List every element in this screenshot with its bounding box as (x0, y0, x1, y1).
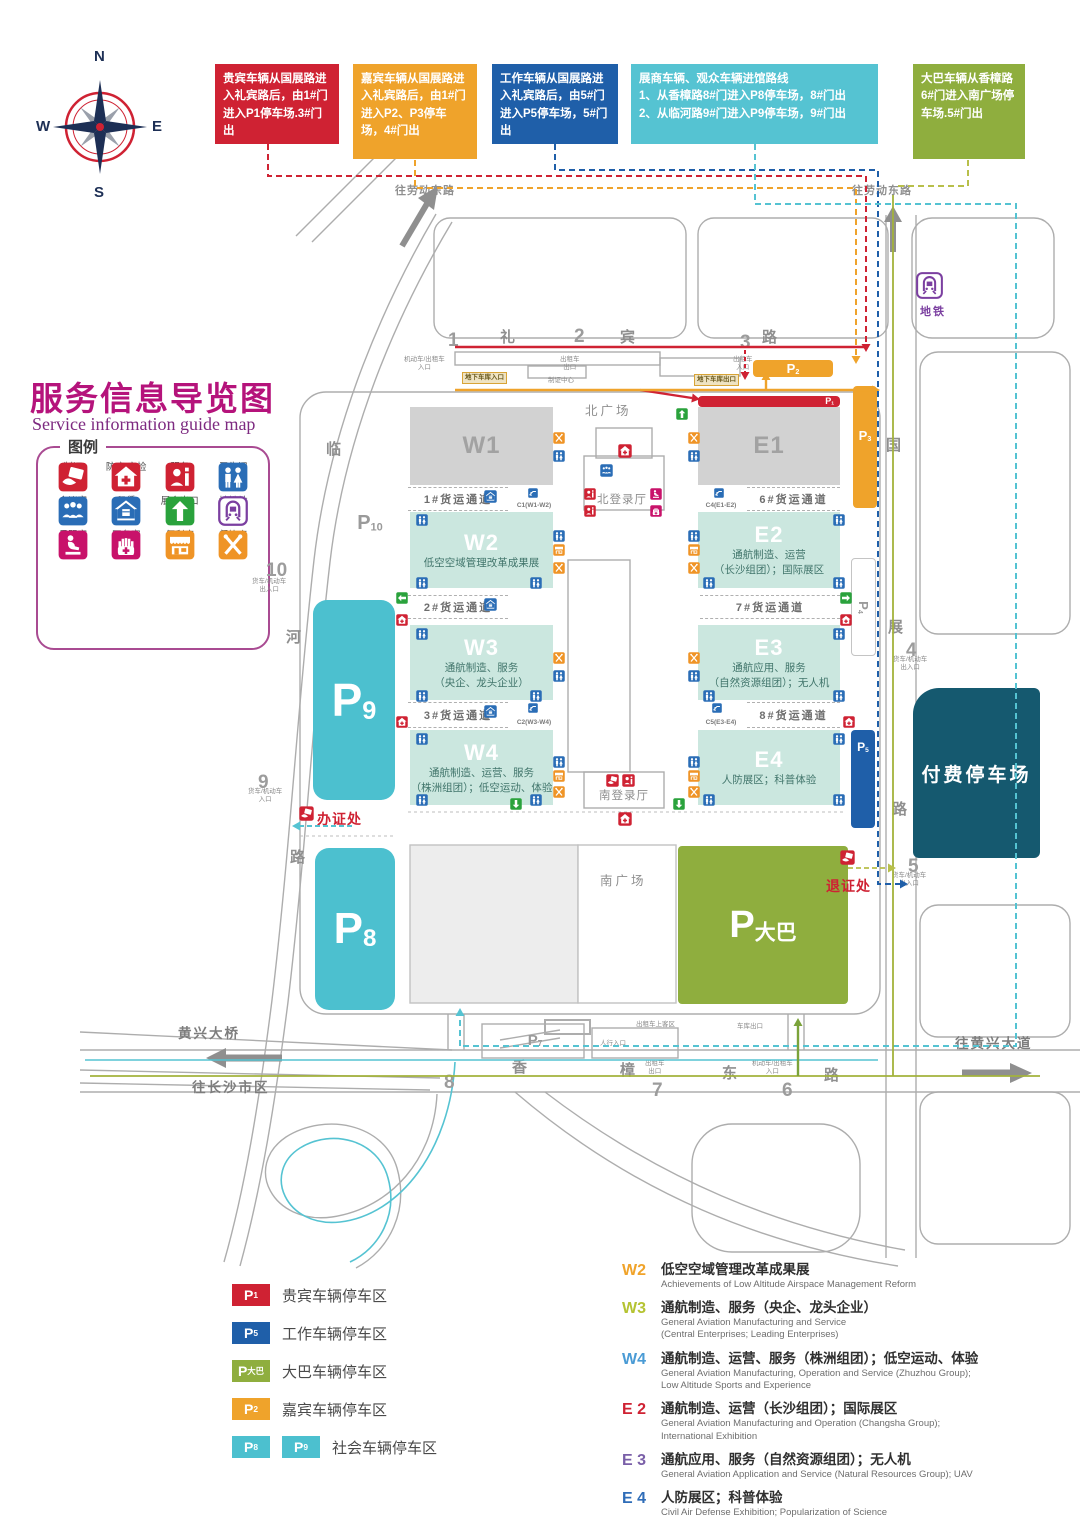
road-label: 往劳动东路 (852, 182, 912, 198)
entrance-label: 车库出口 (737, 1023, 763, 1031)
gate-number-1: 1 (448, 330, 459, 352)
hall-description: 通航制造、运营、服务 （株洲组团）；低空运动、体验 (411, 766, 553, 795)
house-box-icon (111, 496, 141, 526)
wc-icon (553, 756, 565, 768)
parking-legend-row: P1贵宾车辆停车区 (232, 1284, 562, 1306)
plaza-label: 南广场 (600, 870, 647, 889)
right-arrow-icon (840, 592, 852, 604)
parking-p10: P10 (338, 510, 402, 536)
parking-label: P7 (528, 1032, 543, 1049)
parking-label: P9 (332, 673, 377, 727)
utensils-icon (553, 786, 565, 798)
parking-legend-label: 大巴车辆停车区 (282, 1361, 387, 1382)
store-icon (553, 770, 565, 782)
hall-legend-zh: 通航应用、服务（自然资源组团）；无人机 (661, 1452, 973, 1469)
plaza-label: 北广场 (585, 400, 632, 419)
parking-legend-label: 工作车辆停车区 (282, 1323, 387, 1344)
hall-e2: E2通航制造、运营 （长沙组团）；国际展区 (698, 512, 840, 588)
wc-icon (688, 756, 700, 768)
hall-legend-zh: 人防展区；科普体验 (661, 1490, 887, 1507)
parking-chip: P8 (232, 1436, 270, 1458)
metro-icon (916, 272, 943, 299)
hall-legend-entry: E 3通航应用、服务（自然资源组团）；无人机General Aviation A… (622, 1452, 1052, 1481)
wc-icon (688, 530, 700, 542)
entrance-label: 机动车/出租车 入口 (404, 356, 445, 372)
parking-p4: P4 (851, 558, 876, 656)
esc-icon (712, 703, 722, 713)
hall-name: E4 (755, 747, 784, 773)
parking-p8: P8 (315, 848, 395, 1010)
parking-label: P1 (825, 396, 834, 407)
hall-description: 低空空域管理改革成果展 (424, 556, 540, 571)
plaza-label: 南登录厅 (599, 787, 649, 803)
hall-legend-code: E 2 (622, 1401, 652, 1443)
left-arrow-icon (396, 592, 408, 604)
house-cross-icon (111, 462, 141, 492)
utensils-icon (553, 432, 565, 444)
entrance-label: 机动车/出租车 入口 (752, 1060, 793, 1076)
gate-number-2: 2 (574, 326, 585, 348)
hall-name: W4 (464, 740, 499, 766)
hall-legend-en: Achievements of Low Altitude Airspace Ma… (661, 1279, 916, 1291)
hall-legend-en: General Aviation Application and Service… (661, 1469, 973, 1481)
hall-legend: W2低空空域管理改革成果展Achievements of Low Altitud… (622, 1262, 1052, 1527)
hall-legend-code: E 3 (622, 1452, 652, 1481)
service-guide-map: N S W E 贵宾车辆从国展路进入礼宾路后，由1#门进入P1停车场.3#门出嘉… (0, 0, 1080, 1527)
house-cross-icon (396, 614, 408, 626)
hall-e1: E1 (698, 407, 840, 485)
entrance-label: 出租车 出口 (645, 1060, 665, 1076)
up-arrow-icon (676, 408, 688, 420)
freight-channel: 6#货运通道 (747, 487, 840, 511)
card-icon (58, 462, 88, 492)
road-label: 路 (892, 798, 907, 819)
hall-name: W2 (464, 530, 499, 556)
people-icon (600, 464, 613, 477)
store-icon (688, 770, 700, 782)
hall-legend-text: 通航制造、运营（长沙组团）；国际展区General Aviation Manuf… (661, 1401, 940, 1443)
baby-icon (650, 488, 662, 500)
wc-icon (833, 794, 845, 806)
up-arrow-icon (165, 496, 195, 526)
house-cross-icon (843, 716, 855, 728)
house-cross-icon (618, 812, 632, 826)
wc-icon (416, 794, 428, 806)
wc-icon (553, 530, 565, 542)
parking-label: P3 (859, 428, 872, 443)
hall-legend-entry: W2低空空域管理改革成果展Achievements of Low Altitud… (622, 1262, 1052, 1291)
garage-label: 地下车库入口 (462, 372, 507, 384)
road-label: 路 (290, 846, 305, 867)
parking-legend-row: P8P9社会车辆停车区 (232, 1436, 562, 1458)
entrance-label: 人行入口 (600, 1040, 626, 1048)
hall-name: E1 (753, 432, 784, 460)
wc-icon (530, 690, 542, 702)
wc-icon (553, 450, 565, 462)
road-label: 路 (824, 1064, 839, 1085)
person-i-icon (622, 774, 635, 787)
people-icon (58, 496, 88, 526)
parking-label: P2 (787, 361, 800, 376)
road-label: 地铁 (920, 303, 946, 319)
hall-legend-code: W3 (622, 1300, 652, 1342)
hand-cross-icon (111, 530, 141, 560)
store-icon (553, 544, 565, 556)
hall-legend-code: E 4 (622, 1490, 652, 1519)
gate-number-6: 6 (782, 1080, 793, 1102)
wc-icon (688, 670, 700, 682)
hall-legend-en: General Aviation Manufacturing and Opera… (661, 1418, 940, 1443)
wc-icon (218, 462, 248, 492)
utensils-icon (688, 562, 700, 574)
hall-legend-text: 通航应用、服务（自然资源组团）；无人机General Aviation Appl… (661, 1452, 973, 1481)
parking-chip: P1 (232, 1284, 270, 1306)
utensils-icon (553, 652, 565, 664)
badge-office-label: 办证处 (317, 809, 362, 829)
wc-icon (833, 733, 845, 745)
parking-chip: P9 (282, 1436, 320, 1458)
parking-label: P10 (357, 512, 383, 535)
wc-icon (703, 690, 715, 702)
house-cross-icon (618, 444, 632, 458)
plaza-label: 北登录厅 (597, 491, 647, 507)
entrance-label: 出租车 出口 (560, 356, 580, 372)
house-box-icon (484, 598, 497, 611)
freight-channel: 8#货运通道 (747, 702, 840, 728)
road-label: 宾 (620, 326, 635, 347)
road-label: 东 (722, 1062, 737, 1083)
wc-icon (416, 514, 428, 526)
wc-icon (833, 514, 845, 526)
parking-chip: P2 (232, 1398, 270, 1420)
wc-icon (530, 577, 542, 589)
store-icon (165, 530, 195, 560)
road-label: 路 (762, 326, 777, 347)
parking-chip: P大巴 (232, 1360, 270, 1382)
hall-name: W3 (464, 635, 499, 661)
road-label: 黄兴大桥 (178, 1022, 240, 1042)
house-cross-icon (396, 716, 408, 728)
utensils-icon (688, 786, 700, 798)
parking-p5: P5 (851, 730, 875, 828)
entrance-label: 货车/机动车 出入口 (893, 656, 927, 672)
house-box-icon (484, 705, 497, 718)
wc-icon (416, 733, 428, 745)
badge-office-label: 退证处 (826, 876, 871, 896)
hall-description: 通航制造、运营 （长沙组团）；国际展区 (714, 548, 824, 577)
hall-legend-zh: 通航制造、运营、服务（株洲组团）；低空运动、体验 (661, 1351, 978, 1368)
road-label: 往黄兴大道 (955, 1032, 1033, 1052)
esc-icon (528, 703, 538, 713)
hall-legend-en: General Aviation Manufacturing, Operatio… (661, 1368, 978, 1393)
road-label: 礼 (500, 326, 515, 347)
hall-description: 通航应用、服务 （自然资源组团）；无人机 (709, 661, 830, 690)
parking-p3: P3 (853, 386, 877, 508)
entrance-label: 出租车 入口 (733, 356, 753, 372)
hall-legend-code: W4 (622, 1351, 652, 1393)
paid-parking-area: 付费停车场 (913, 688, 1040, 858)
wc-icon (416, 628, 428, 640)
hall-legend-entry: E 2通航制造、运营（长沙组团）；国际展区General Aviation Ma… (622, 1401, 1052, 1443)
hall-legend-entry: W3通航制造、服务（央企、龙头企业）General Aviation Manuf… (622, 1300, 1052, 1342)
parking-legend-row: P5工作车辆停车区 (232, 1322, 562, 1344)
esc-icon (714, 488, 724, 498)
house-box-icon (484, 490, 497, 503)
parking-p7: P7 (505, 1030, 565, 1050)
card-icon (299, 806, 314, 821)
wc-icon (703, 794, 715, 806)
hall-legend-entry: E 4人防展区；科普体验Civil Air Defense Exhibition… (622, 1490, 1052, 1519)
entrance-label: 货车/机动车 出入口 (252, 578, 286, 594)
road-label: 香 (512, 1056, 527, 1077)
wc-icon (833, 690, 845, 702)
parking-label: P大巴 (729, 904, 796, 947)
parking-legend-label: 贵宾车辆停车区 (282, 1285, 387, 1306)
hall-legend-zh: 通航制造、运营（长沙组团）；国际展区 (661, 1401, 940, 1418)
entrance-label: 货车/机动车 出入口 (892, 872, 926, 888)
road-label: 樟 (620, 1059, 635, 1080)
hall-legend-text: 人防展区；科普体验Civil Air Defense Exhibition; P… (661, 1490, 887, 1519)
wc-icon (530, 794, 542, 806)
parking-legend: P1贵宾车辆停车区P5工作车辆停车区P大巴大巴车辆停车区P2嘉宾车辆停车区P8P… (232, 1284, 562, 1474)
hall-name: W1 (463, 432, 501, 460)
wc-icon (703, 577, 715, 589)
wc-icon (688, 450, 700, 462)
utensils-icon (218, 530, 248, 560)
parking-p9: P9 (313, 600, 395, 800)
hall-description: 人防展区；科普体验 (722, 773, 817, 788)
card-icon (840, 850, 855, 865)
esc-icon (528, 488, 538, 498)
hall-w3: W3通航制造、服务 （央企、龙头企业） (410, 625, 553, 700)
parking-p大巴: P大巴 (678, 846, 848, 1004)
hall-legend-en: Civil Air Defense Exhibition; Populariza… (661, 1507, 887, 1519)
wc-icon (416, 577, 428, 589)
hall-legend-entry: W4通航制造、运营、服务（株洲组团）；低空运动、体验General Aviati… (622, 1351, 1052, 1393)
hall-legend-text: 低空空域管理改革成果展Achievements of Low Altitude … (661, 1262, 916, 1291)
hall-e4: E4人防展区；科普体验 (698, 730, 840, 805)
parking-p2: P2 (753, 360, 833, 377)
hall-description: 通航制造、服务 （央企、龙头企业） (434, 661, 529, 690)
hall-legend-text: 通航制造、运营、服务（株洲组团）；低空运动、体验General Aviation… (661, 1351, 978, 1393)
hall-legend-zh: 低空空域管理改革成果展 (661, 1262, 916, 1279)
road-label: 国 (886, 434, 901, 455)
parking-label: P4 (856, 601, 871, 614)
hall-name: E3 (755, 635, 784, 661)
wc-icon (833, 577, 845, 589)
gate-number-7: 7 (652, 1080, 663, 1102)
utensils-icon (688, 432, 700, 444)
hand-cross-icon (650, 505, 662, 517)
hall-legend-text: 通航制造、服务（央企、龙头企业）General Aviation Manufac… (661, 1300, 877, 1342)
parking-legend-row: P大巴大巴车辆停车区 (232, 1360, 562, 1382)
parking-legend-row: P2嘉宾车辆停车区 (232, 1398, 562, 1420)
wc-icon (833, 628, 845, 640)
wc-icon (553, 670, 565, 682)
gate-number-8: 8 (444, 1072, 455, 1094)
road-label: 往长沙市区 (192, 1076, 270, 1096)
road-label: 往劳动东路 (395, 182, 455, 198)
parking-label: P8 (334, 904, 377, 954)
road-label: 河 (286, 626, 301, 647)
garage-label: 地下车库出口 (694, 374, 739, 386)
baby-icon (58, 530, 88, 560)
parking-legend-label: 嘉宾车辆停车区 (282, 1399, 387, 1420)
road-label: 展 (888, 616, 903, 637)
gate-number-3: 3 (740, 332, 751, 354)
metro-icon (218, 496, 248, 526)
down-arrow-icon (510, 798, 522, 810)
freight-channel: 7#货运通道 (700, 595, 840, 619)
hall-legend-zh: 通航制造、服务（央企、龙头企业） (661, 1300, 877, 1317)
hall-legend-code: W2 (622, 1262, 652, 1291)
utensils-icon (688, 652, 700, 664)
house-cross-icon (840, 614, 852, 626)
road-label: 临 (326, 438, 341, 459)
hall-w1: W1 (410, 407, 553, 485)
card-icon (606, 774, 619, 787)
hall-legend-en: General Aviation Manufacturing and Servi… (661, 1317, 877, 1342)
utensils-icon (553, 562, 565, 574)
hall-name: E2 (755, 522, 784, 548)
parking-legend-label: 社会车辆停车区 (332, 1437, 437, 1458)
person-i-icon (165, 462, 195, 492)
person-i-icon (584, 505, 596, 517)
down-arrow-icon (673, 798, 685, 810)
parking-chip: P5 (232, 1322, 270, 1344)
person-i-icon (584, 488, 596, 500)
wc-icon (416, 690, 428, 702)
store-icon (688, 544, 700, 556)
entrance-label: 出租车上客区 (636, 1021, 675, 1029)
parking-p1: P1 (698, 396, 840, 407)
parking-label: P5 (857, 740, 869, 754)
hall-e3: E3通航应用、服务 （自然资源组团）；无人机 (698, 625, 840, 700)
entrance-label: 制证中心 (548, 377, 574, 385)
entrance-label: 货车/机动车 入口 (248, 788, 282, 804)
